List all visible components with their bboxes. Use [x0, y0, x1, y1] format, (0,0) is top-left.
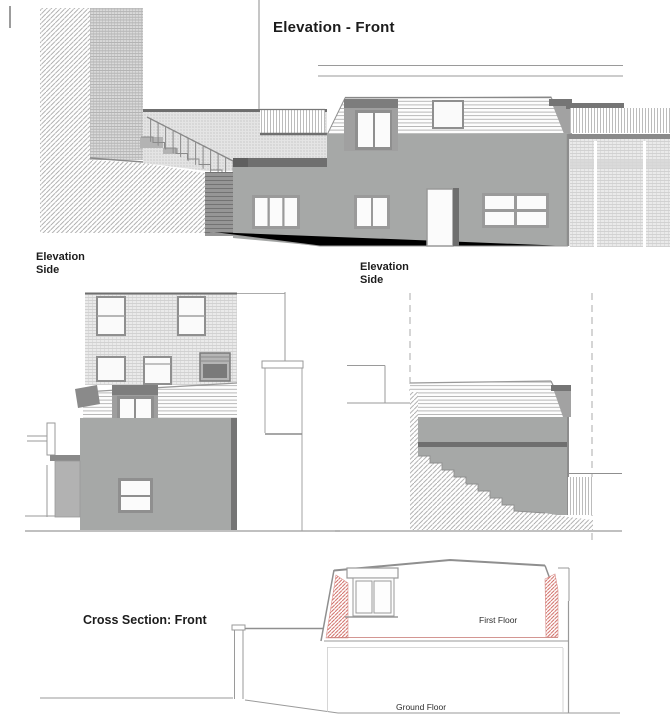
upper-sash-window	[97, 297, 125, 335]
boundary-wall-section	[235, 630, 244, 699]
rear-door	[144, 357, 171, 384]
roof-verge	[75, 385, 100, 408]
boundary-wall-coping	[568, 134, 670, 139]
side-elevation-left-drawing	[25, 292, 340, 531]
boundary-fence	[570, 108, 670, 133]
wall-corner-strip	[231, 418, 237, 530]
cross-section-drawing	[40, 560, 620, 713]
dormer-section	[345, 568, 398, 617]
shuttered-opening	[200, 353, 230, 381]
large-window	[482, 193, 549, 228]
dormer-window-pane	[358, 113, 373, 147]
side-elevation-right-title: ElevationSide	[360, 261, 409, 286]
front-elevation-drawing	[10, 0, 670, 247]
upper-sash-window	[178, 297, 205, 335]
architectural-drawing-sheet: Elevation - Front ElevationSide Elevatio…	[0, 0, 670, 725]
side-wall-window	[118, 478, 153, 513]
side-elevation-right-drawing	[335, 293, 622, 545]
front-door	[427, 188, 459, 246]
parapet-outline	[558, 568, 569, 601]
front-dormer	[344, 99, 398, 151]
insulated-wall-hatch-right	[545, 574, 558, 637]
dormer-fascia	[344, 99, 398, 108]
extension-roof-side	[83, 383, 237, 418]
flue-outline	[47, 423, 55, 455]
insulated-wall-hatch-left	[326, 575, 348, 638]
wall-band	[418, 442, 568, 447]
boundary-wall-cap	[232, 625, 245, 630]
front-elevation-title: Elevation - Front	[273, 19, 395, 36]
shed	[55, 461, 80, 517]
triple-window	[252, 195, 300, 229]
rooflight	[433, 101, 463, 128]
shed-roof-cap	[50, 455, 80, 461]
double-window	[354, 195, 390, 229]
boundary-fence	[568, 477, 593, 515]
cross-section-title: Cross Section: Front	[83, 613, 207, 627]
brick-pier	[90, 8, 143, 160]
first-floor-label: First Floor	[479, 615, 517, 625]
neighbour-outline	[347, 366, 410, 404]
roof-verge-cap	[551, 385, 571, 391]
lower-stair-block	[205, 172, 233, 236]
background-roof-ridge-lines	[318, 66, 623, 77]
side-elevation-left-title: ElevationSide	[36, 251, 85, 276]
terrace-railing	[260, 110, 325, 133]
door-jamb	[453, 188, 459, 246]
dormer-window-pane	[375, 113, 390, 147]
extension-roof-side	[410, 381, 568, 417]
extension-side-wall	[80, 418, 233, 530]
boundary-brick-wall	[570, 139, 670, 247]
ground-floor-label: Ground Floor	[396, 702, 446, 712]
ground-line	[40, 698, 620, 713]
lower-window	[97, 357, 125, 381]
